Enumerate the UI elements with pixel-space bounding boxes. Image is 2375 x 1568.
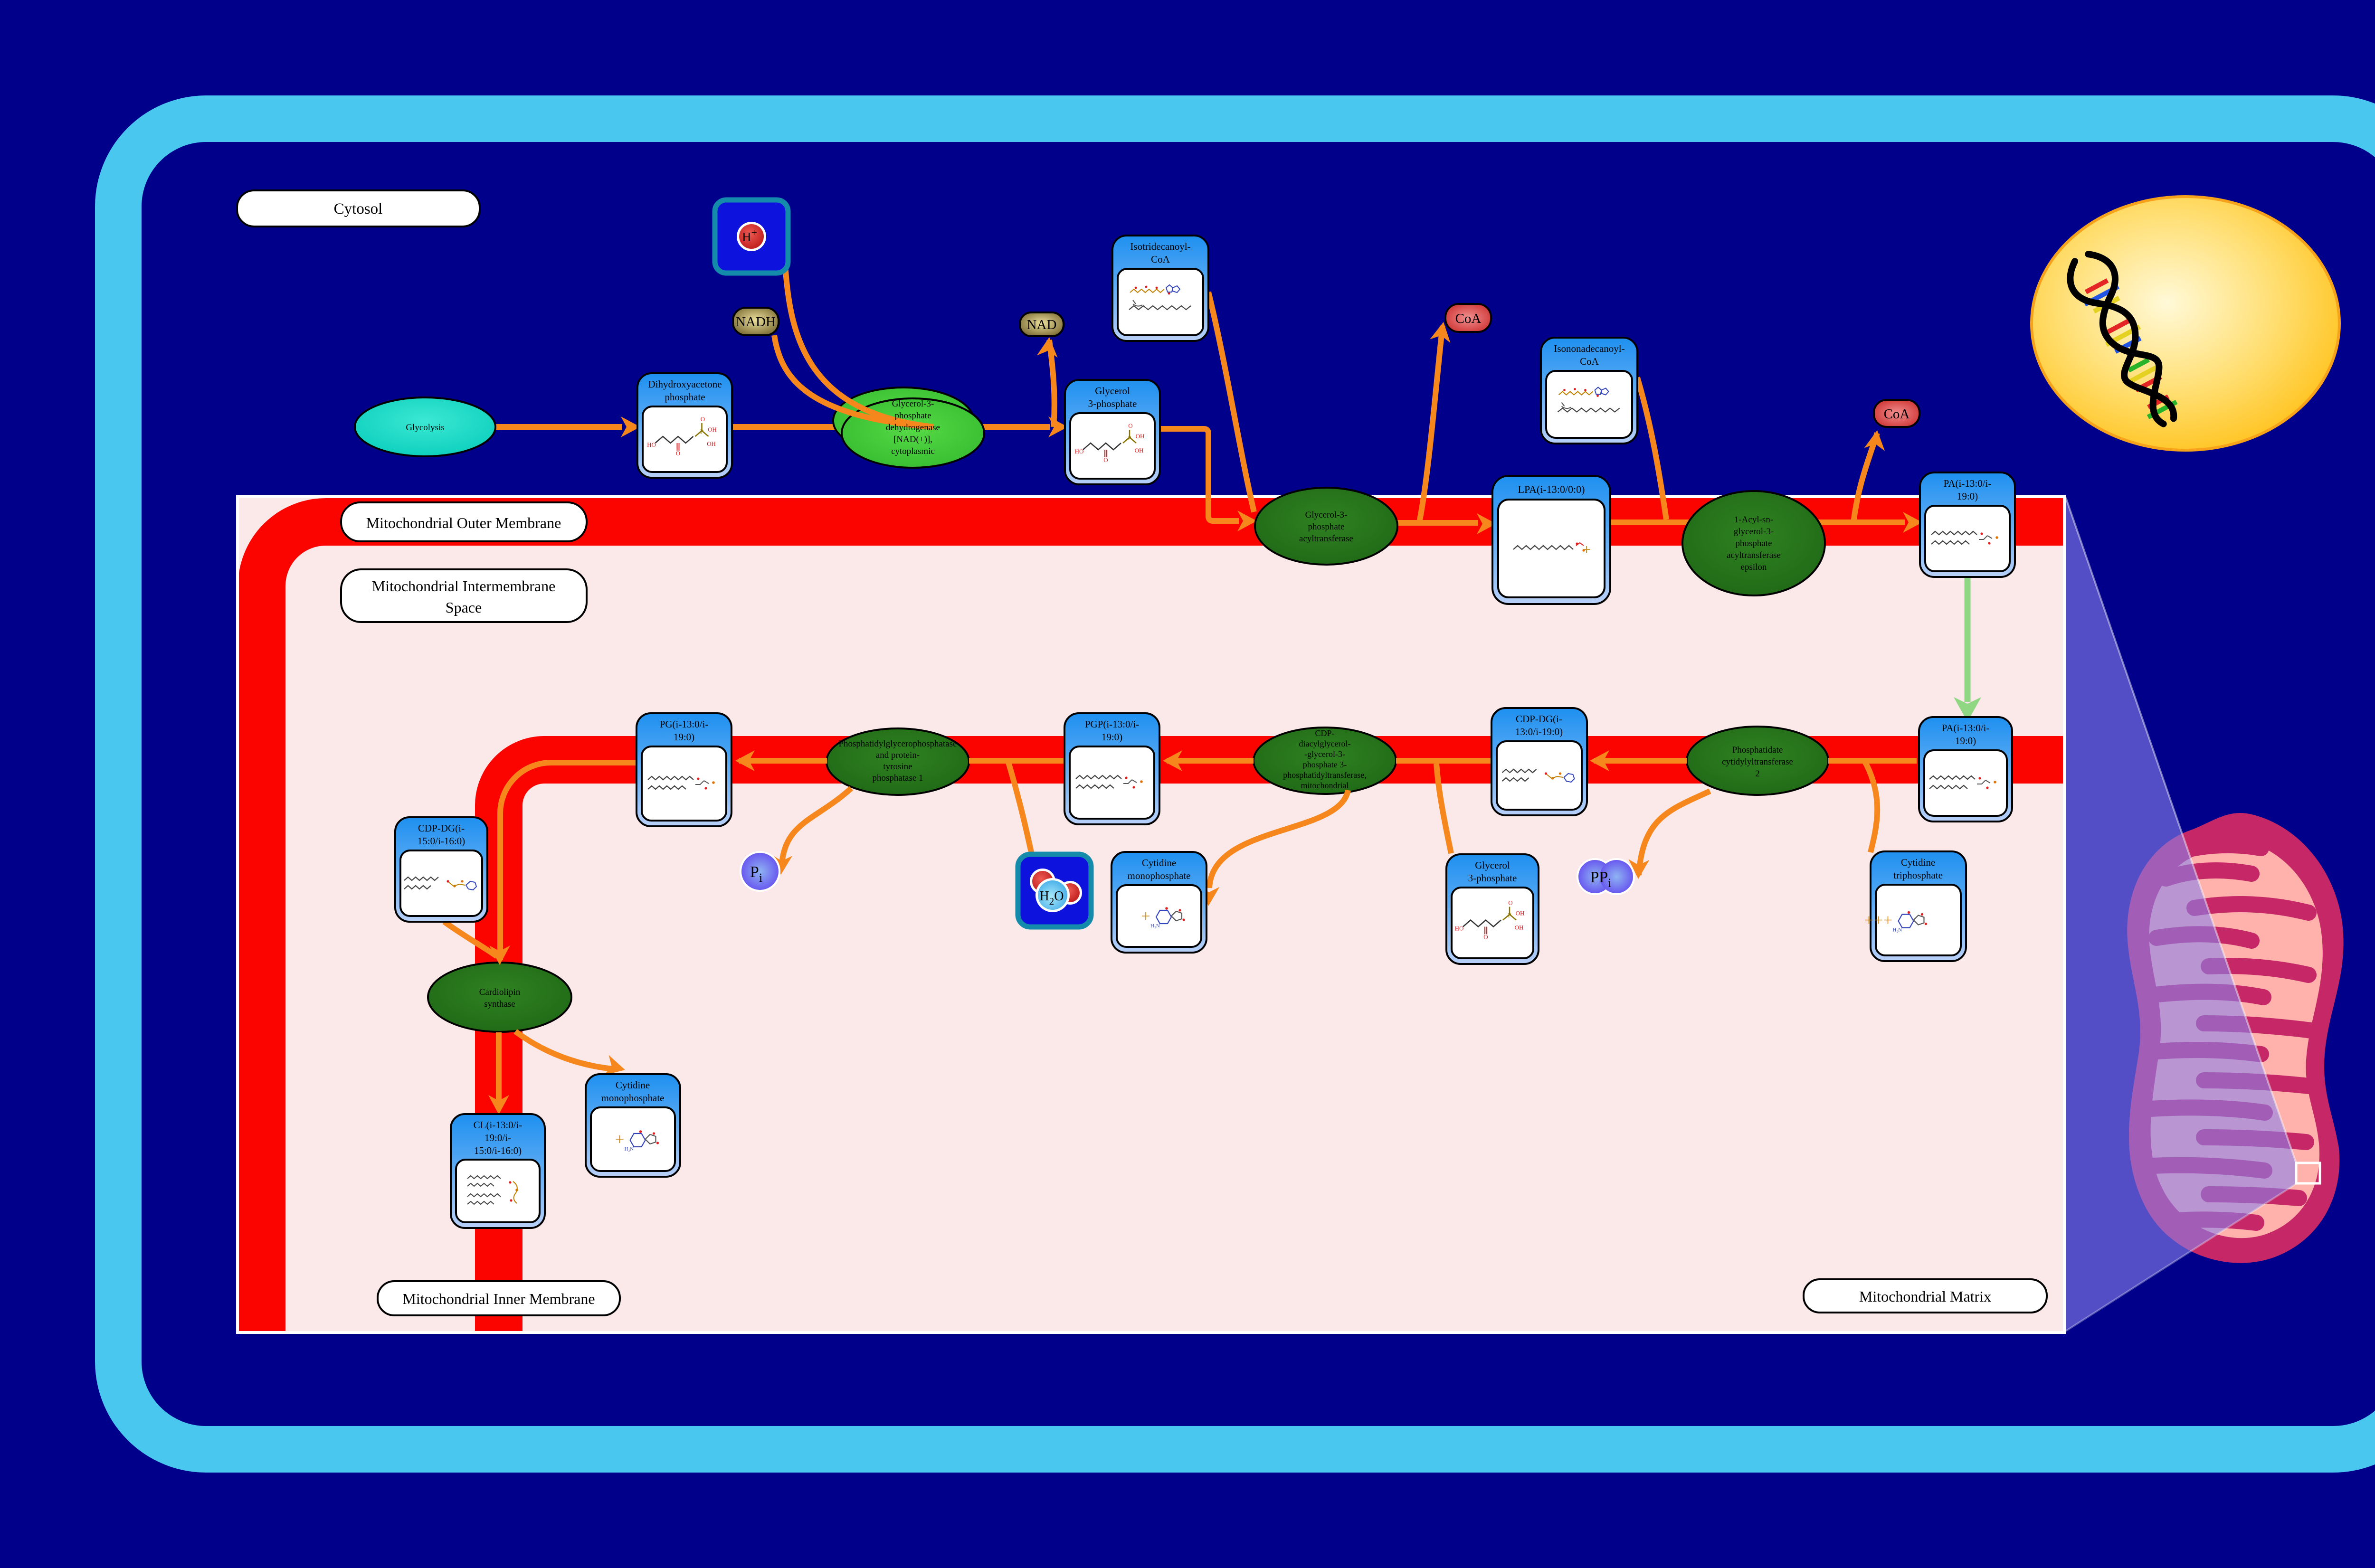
svg-text:19:0): 19:0) bbox=[1955, 735, 1976, 746]
svg-text:CDP-DG(i-: CDP-DG(i- bbox=[1516, 713, 1562, 725]
svg-text:phosphate: phosphate bbox=[1308, 522, 1344, 532]
svg-text:Mitochondrial Intermembrane: Mitochondrial Intermembrane bbox=[372, 577, 556, 595]
svg-text:OH: OH bbox=[708, 426, 717, 433]
svg-text:Phosphatidylglycerophosphatase: Phosphatidylglycerophosphatase bbox=[838, 739, 957, 749]
svg-text:phosphate 3-: phosphate 3- bbox=[1303, 760, 1347, 769]
svg-text:phosphate: phosphate bbox=[894, 411, 931, 421]
svg-text:[NAD(+)],: [NAD(+)], bbox=[893, 435, 932, 444]
svg-text:LPA(i-13:0/0:0): LPA(i-13:0/0:0) bbox=[1518, 483, 1585, 495]
svg-text:Cytidine: Cytidine bbox=[616, 1079, 650, 1091]
svg-text:19:0): 19:0) bbox=[1102, 731, 1122, 743]
svg-text:HO: HO bbox=[1455, 925, 1464, 932]
svg-text:CoA: CoA bbox=[1151, 254, 1170, 265]
svg-text:triphosphate: triphosphate bbox=[1893, 869, 1943, 881]
svg-text:CoA: CoA bbox=[1580, 356, 1599, 367]
svg-text:Mitochondrial Outer Membrane: Mitochondrial Outer Membrane bbox=[366, 514, 561, 531]
svg-text:phosphate: phosphate bbox=[665, 391, 705, 403]
svg-text:PGP(i-13:0/i-: PGP(i-13:0/i- bbox=[1085, 718, 1139, 730]
svg-text:H₂N: H₂N bbox=[1893, 927, 1902, 933]
svg-text:OH: OH bbox=[1136, 433, 1145, 440]
svg-text:acyltransferase: acyltransferase bbox=[1299, 534, 1353, 544]
svg-text:O: O bbox=[1508, 899, 1512, 907]
svg-text:epsilon: epsilon bbox=[1741, 562, 1767, 572]
svg-text:Space: Space bbox=[446, 599, 482, 616]
svg-text:Isotridecanoyl-: Isotridecanoyl- bbox=[1130, 241, 1190, 252]
svg-text:PA(i-13:0/i-: PA(i-13:0/i- bbox=[1944, 478, 1992, 489]
svg-text:O: O bbox=[701, 416, 705, 423]
svg-text:cytoplasmic: cytoplasmic bbox=[891, 446, 935, 456]
svg-text:Mitochondrial Matrix: Mitochondrial Matrix bbox=[1859, 1288, 1991, 1305]
svg-text:15:0/i-16:0): 15:0/i-16:0) bbox=[418, 835, 465, 847]
svg-text:mitochondrial: mitochondrial bbox=[1301, 781, 1349, 790]
svg-text:diacylglycerol-: diacylglycerol- bbox=[1299, 739, 1351, 748]
svg-text:13:0/i-19:0): 13:0/i-19:0) bbox=[1515, 726, 1563, 737]
svg-text:CoA: CoA bbox=[1884, 406, 1910, 422]
svg-text:acyltransferase: acyltransferase bbox=[1727, 550, 1781, 560]
svg-text:Isononadecanoyl-: Isononadecanoyl- bbox=[1554, 343, 1624, 354]
svg-text:monophosphate: monophosphate bbox=[601, 1092, 665, 1104]
svg-text:H₂N: H₂N bbox=[1150, 923, 1160, 929]
svg-text:HO: HO bbox=[1075, 448, 1084, 455]
svg-text:1-Acyl-sn-: 1-Acyl-sn- bbox=[1734, 515, 1773, 525]
svg-text:NADH: NADH bbox=[736, 314, 776, 330]
svg-text:15:0/i-16:0): 15:0/i-16:0) bbox=[474, 1145, 522, 1156]
svg-text:Glycerol-3-: Glycerol-3- bbox=[892, 399, 934, 409]
svg-text:O: O bbox=[1103, 456, 1108, 463]
svg-text:Glycolysis: Glycolysis bbox=[406, 423, 444, 433]
svg-text:P: P bbox=[1128, 435, 1131, 442]
svg-text:O: O bbox=[1483, 934, 1488, 941]
svg-text:Glycerol: Glycerol bbox=[1475, 860, 1510, 871]
svg-text:CDP-DG(i-: CDP-DG(i- bbox=[418, 822, 465, 834]
svg-text:Phosphatidate: Phosphatidate bbox=[1732, 745, 1783, 755]
svg-text:Cardiolipin: Cardiolipin bbox=[479, 987, 521, 997]
svg-text:CL(i-13:0/i-: CL(i-13:0/i- bbox=[474, 1119, 522, 1131]
svg-text:H₂N: H₂N bbox=[625, 1146, 634, 1152]
svg-text:Mitochondrial Inner Membrane: Mitochondrial Inner Membrane bbox=[402, 1290, 595, 1307]
svg-text:phosphate: phosphate bbox=[1735, 538, 1772, 548]
svg-text:NAD: NAD bbox=[1027, 317, 1057, 332]
svg-text:-glycerol-3-: -glycerol-3- bbox=[1304, 749, 1345, 759]
svg-text:2: 2 bbox=[1755, 769, 1760, 779]
svg-text:glycerol-3-: glycerol-3- bbox=[1734, 527, 1774, 537]
svg-text:CoA: CoA bbox=[1455, 311, 1482, 326]
svg-text:dehydrogenase: dehydrogenase bbox=[886, 423, 940, 433]
svg-text:19:0/i-: 19:0/i- bbox=[484, 1132, 511, 1143]
svg-text:3-phosphate: 3-phosphate bbox=[1088, 398, 1137, 409]
svg-text:Cytidine: Cytidine bbox=[1901, 857, 1935, 868]
svg-text:cytidylyltransferase: cytidylyltransferase bbox=[1722, 757, 1793, 767]
svg-text:P: P bbox=[1508, 912, 1511, 919]
svg-text:monophosphate: monophosphate bbox=[1128, 870, 1191, 881]
svg-text:O: O bbox=[676, 450, 680, 457]
svg-text:19:0): 19:0) bbox=[1957, 491, 1978, 502]
svg-text:OH: OH bbox=[1135, 447, 1144, 454]
svg-text:CDP-: CDP- bbox=[1315, 728, 1334, 738]
svg-text:Dihydroxyacetone: Dihydroxyacetone bbox=[648, 378, 722, 390]
svg-text:PG(i-13:0/i-: PG(i-13:0/i- bbox=[660, 718, 709, 730]
svg-text:OH: OH bbox=[1516, 910, 1525, 917]
svg-text:Cytidine: Cytidine bbox=[1142, 857, 1176, 869]
svg-text:Glycerol-3-: Glycerol-3- bbox=[1305, 510, 1348, 520]
svg-text:19:0): 19:0) bbox=[674, 731, 694, 743]
svg-text:3-phosphate: 3-phosphate bbox=[1468, 872, 1517, 884]
svg-text:phosphatase 1: phosphatase 1 bbox=[872, 773, 923, 783]
svg-text:Cytosol: Cytosol bbox=[334, 200, 383, 217]
svg-text:phosphatidyltransferase,: phosphatidyltransferase, bbox=[1283, 770, 1366, 780]
svg-text:Glycerol: Glycerol bbox=[1095, 385, 1130, 397]
svg-text:tyrosine: tyrosine bbox=[883, 762, 912, 772]
svg-text:HO: HO bbox=[647, 441, 656, 448]
svg-text:PA(i-13:0/i-: PA(i-13:0/i- bbox=[1942, 722, 1990, 734]
svg-text:OH: OH bbox=[707, 440, 716, 447]
svg-text:OH: OH bbox=[1515, 924, 1524, 931]
svg-text:O: O bbox=[1128, 422, 1132, 429]
svg-text:and protein-: and protein- bbox=[876, 750, 920, 760]
svg-text:synthase: synthase bbox=[484, 999, 515, 1009]
svg-text:P: P bbox=[700, 428, 703, 435]
